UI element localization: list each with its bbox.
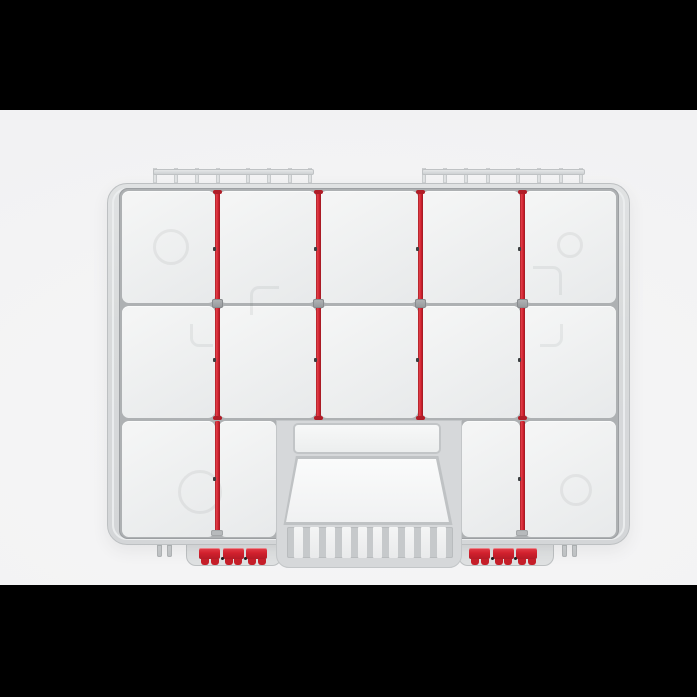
handle-grip <box>287 527 453 558</box>
latch-dot <box>514 557 517 560</box>
divider-clip <box>415 299 426 308</box>
divider-clip <box>517 299 528 308</box>
compartment-panel <box>422 191 520 303</box>
divider-notch <box>518 477 521 481</box>
handle-cavity <box>283 459 453 522</box>
latch-tab <box>248 559 256 565</box>
compartment-panel <box>462 421 520 537</box>
latch-tab <box>471 559 479 565</box>
emboss-corner-mark <box>250 286 279 315</box>
compartment-panel <box>122 306 215 418</box>
latch-tab <box>234 559 242 565</box>
latch-segment <box>246 548 267 559</box>
divider-end-clip <box>516 530 528 536</box>
screenshot-root <box>0 0 697 697</box>
red-divider-cap <box>213 416 222 420</box>
foot-tab <box>167 545 172 557</box>
latch-tab <box>258 559 266 565</box>
emboss-corner-mark <box>190 324 213 347</box>
red-divider-cap <box>314 416 323 420</box>
grip-slat <box>342 527 351 558</box>
divider-end-clip <box>211 530 223 536</box>
divider-notch <box>213 247 216 251</box>
compartment-panel <box>219 421 276 537</box>
compartment-panel <box>422 306 520 418</box>
red-divider-cap <box>213 190 222 194</box>
grip-slat <box>389 527 398 558</box>
grip-slat <box>437 527 446 558</box>
divider-notch <box>518 358 521 362</box>
latch-tab <box>211 559 219 565</box>
grip-slat <box>421 527 430 558</box>
grip-slat <box>373 527 382 558</box>
foot-tab <box>572 545 577 557</box>
latch-segment <box>469 548 490 559</box>
divider-clip <box>212 299 223 308</box>
latch-tab <box>225 559 233 565</box>
latch-dot <box>221 557 224 560</box>
latch-tab <box>495 559 503 565</box>
compartment-panel <box>320 191 418 303</box>
foot-tab <box>562 545 567 557</box>
letterbox-top <box>0 0 697 110</box>
foot-tab <box>157 545 162 557</box>
divider-notch <box>416 358 419 362</box>
divider-notch <box>314 358 317 362</box>
compartment-panel <box>320 306 418 418</box>
red-divider-cap <box>518 416 527 420</box>
latch-tab <box>201 559 209 565</box>
latch-tab <box>518 559 526 565</box>
compartment-panel <box>219 306 316 418</box>
emboss-circle-mark <box>560 474 592 506</box>
divider-notch <box>213 477 216 481</box>
emboss-corner-mark <box>533 266 562 295</box>
handle-tray <box>293 423 441 454</box>
latch-segment <box>493 548 514 559</box>
hinge-rail <box>422 169 585 175</box>
grip-slat <box>294 527 303 558</box>
letterbox-bottom <box>0 585 697 697</box>
latch-dot <box>491 557 494 560</box>
emboss-corner-mark <box>540 324 563 347</box>
latch-tab <box>504 559 512 565</box>
emboss-circle-mark <box>153 229 189 265</box>
grip-slat <box>310 527 319 558</box>
red-divider-cap <box>314 190 323 194</box>
grip-slat <box>358 527 367 558</box>
latch-segment <box>199 548 220 559</box>
red-divider-cap <box>416 190 425 194</box>
latch-dot <box>244 557 247 560</box>
divider-notch <box>213 358 216 362</box>
grip-slat <box>405 527 414 558</box>
divider-clip <box>313 299 324 308</box>
latch-tab <box>481 559 489 565</box>
compartment-panel <box>524 306 616 418</box>
divider-notch <box>518 247 521 251</box>
divider-notch <box>314 247 317 251</box>
grip-slat <box>326 527 335 558</box>
latch-tab <box>528 559 536 565</box>
hinge-rail <box>153 169 314 175</box>
latch-segment <box>223 548 244 559</box>
latch-segment <box>516 548 537 559</box>
red-divider-cap <box>416 416 425 420</box>
red-divider-cap <box>518 190 527 194</box>
divider-notch <box>416 247 419 251</box>
emboss-circle-mark <box>557 232 583 258</box>
